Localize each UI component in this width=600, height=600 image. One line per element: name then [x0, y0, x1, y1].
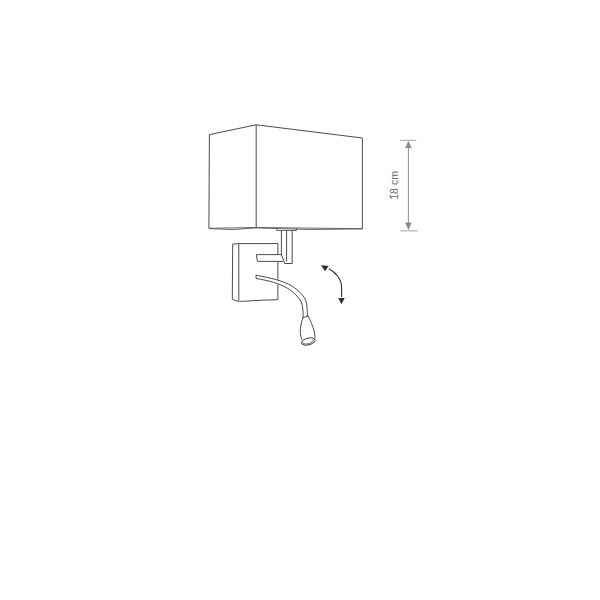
svg-text:18 cm: 18 cm	[388, 171, 400, 200]
